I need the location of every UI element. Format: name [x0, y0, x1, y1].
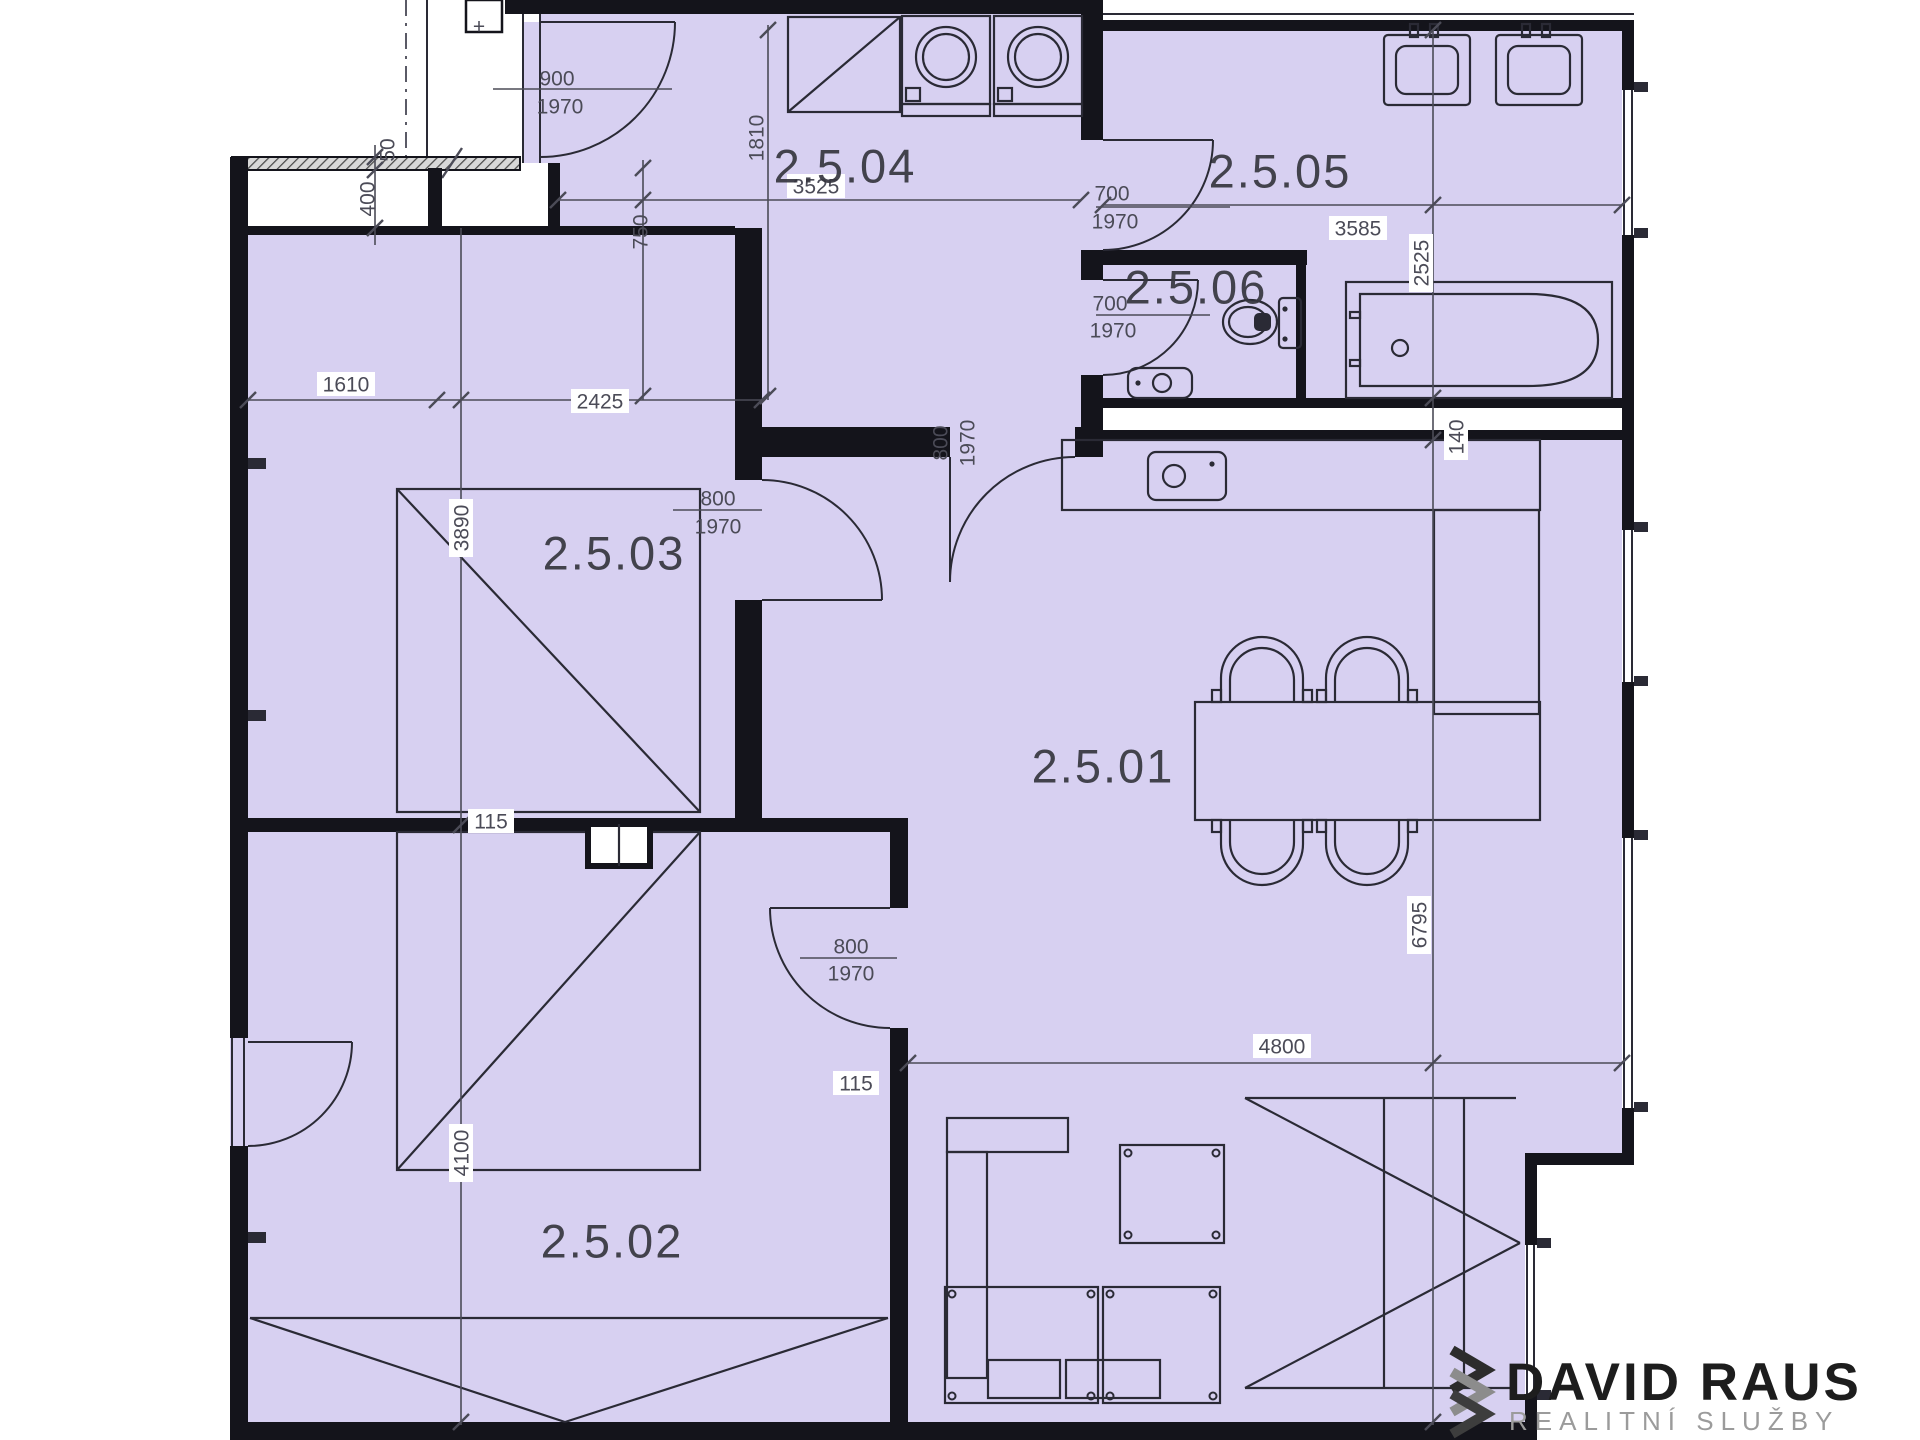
dim-label: 1970	[957, 420, 980, 467]
logo-subtitle: REALITNÍ SLUŽBY	[1509, 1406, 1839, 1436]
dim-label: 700	[1094, 183, 1129, 206]
svg-text:2.5.01: 2.5.01	[1032, 740, 1175, 793]
svg-text:400: 400	[357, 181, 380, 216]
room-label: 2.5.02	[541, 1215, 684, 1268]
svg-text:1970: 1970	[1092, 211, 1139, 234]
room-label: 2.5.04	[774, 140, 917, 193]
dim-label: 1970	[1090, 320, 1137, 343]
dim-label: 4100	[449, 1124, 474, 1182]
svg-text:115: 115	[839, 1073, 872, 1096]
dim-label: 1970	[695, 516, 742, 539]
room-label: 2.5.01	[1032, 740, 1175, 793]
svg-text:800: 800	[833, 936, 868, 959]
svg-text:4800: 4800	[1259, 1036, 1306, 1059]
dim-label: 800	[700, 488, 735, 511]
dim-label: 3585	[1329, 216, 1387, 241]
dim-label: +	[473, 16, 485, 39]
dim-label: 115	[468, 809, 514, 834]
dim-label: 400	[357, 181, 380, 216]
dim-label: 1610	[317, 372, 375, 397]
room-label: 2.5.05	[1209, 145, 1352, 198]
svg-text:4100: 4100	[451, 1130, 474, 1177]
svg-text:700: 700	[1092, 293, 1127, 316]
dim-label: 700	[1092, 293, 1127, 316]
window-right-3	[1624, 838, 1632, 1108]
dim-label: 800	[833, 936, 868, 959]
bedroom2-floor	[248, 832, 890, 1422]
svg-text:1970: 1970	[957, 420, 980, 467]
dim-label: 800	[930, 425, 953, 460]
svg-text:700: 700	[1094, 183, 1129, 206]
svg-text:+: +	[473, 16, 485, 39]
dim-label: 750	[630, 214, 653, 249]
dim-label: 140	[1444, 414, 1469, 460]
dim-label: 1970	[828, 963, 875, 986]
dim-label: 3890	[449, 499, 474, 557]
dim-label: 4800	[1253, 1034, 1311, 1059]
svg-text:50: 50	[377, 138, 400, 161]
svg-text:115: 115	[474, 811, 507, 834]
svg-text:1970: 1970	[1090, 320, 1137, 343]
svg-text:140: 140	[1446, 419, 1469, 454]
floor-plan-svg: 900197050400+750181035253585252570019707…	[0, 0, 1920, 1440]
dim-label: 50	[377, 138, 400, 161]
room-label: 2.5.06	[1125, 261, 1268, 314]
svg-text:2.5.03: 2.5.03	[543, 527, 686, 580]
svg-text:1970: 1970	[537, 96, 584, 119]
svg-text:800: 800	[930, 425, 953, 460]
logo-davidraus: DAVID RAUS REALITNÍ SLUŽBY	[1452, 1350, 1862, 1436]
dim-label: 1970	[1092, 211, 1139, 234]
svg-text:2425: 2425	[577, 391, 624, 414]
svg-text:2525: 2525	[1411, 240, 1434, 287]
svg-text:800: 800	[700, 488, 735, 511]
svg-text:1810: 1810	[746, 115, 769, 162]
floor-plan-page: 900197050400+750181035253585252570019707…	[0, 0, 1920, 1440]
svg-text:750: 750	[630, 214, 653, 249]
svg-text:1970: 1970	[828, 963, 875, 986]
svg-text:3890: 3890	[451, 505, 474, 552]
dim-label: 6795	[1407, 896, 1432, 954]
svg-text:900: 900	[539, 68, 574, 91]
svg-text:2.5.04: 2.5.04	[774, 140, 917, 193]
dim-label: 1810	[746, 115, 769, 162]
svg-text:2.5.02: 2.5.02	[541, 1215, 684, 1268]
dim-label: 115	[833, 1071, 879, 1096]
svg-text:6795: 6795	[1409, 902, 1432, 949]
svg-text:1610: 1610	[323, 374, 370, 397]
svg-text:2.5.05: 2.5.05	[1209, 145, 1352, 198]
svg-text:3585: 3585	[1335, 218, 1382, 241]
shaft	[588, 824, 650, 866]
dim-label: 2425	[571, 389, 629, 414]
room-label: 2.5.03	[543, 527, 686, 580]
logo-title: DAVID RAUS	[1506, 1353, 1862, 1412]
dim-label: 1970	[537, 96, 584, 119]
dim-label: 2525	[1409, 234, 1434, 292]
dim-label: 900	[539, 68, 574, 91]
svg-text:2.5.06: 2.5.06	[1125, 261, 1268, 314]
svg-text:1970: 1970	[695, 516, 742, 539]
window-right-2	[1624, 530, 1632, 682]
window-right-1	[1624, 90, 1632, 235]
